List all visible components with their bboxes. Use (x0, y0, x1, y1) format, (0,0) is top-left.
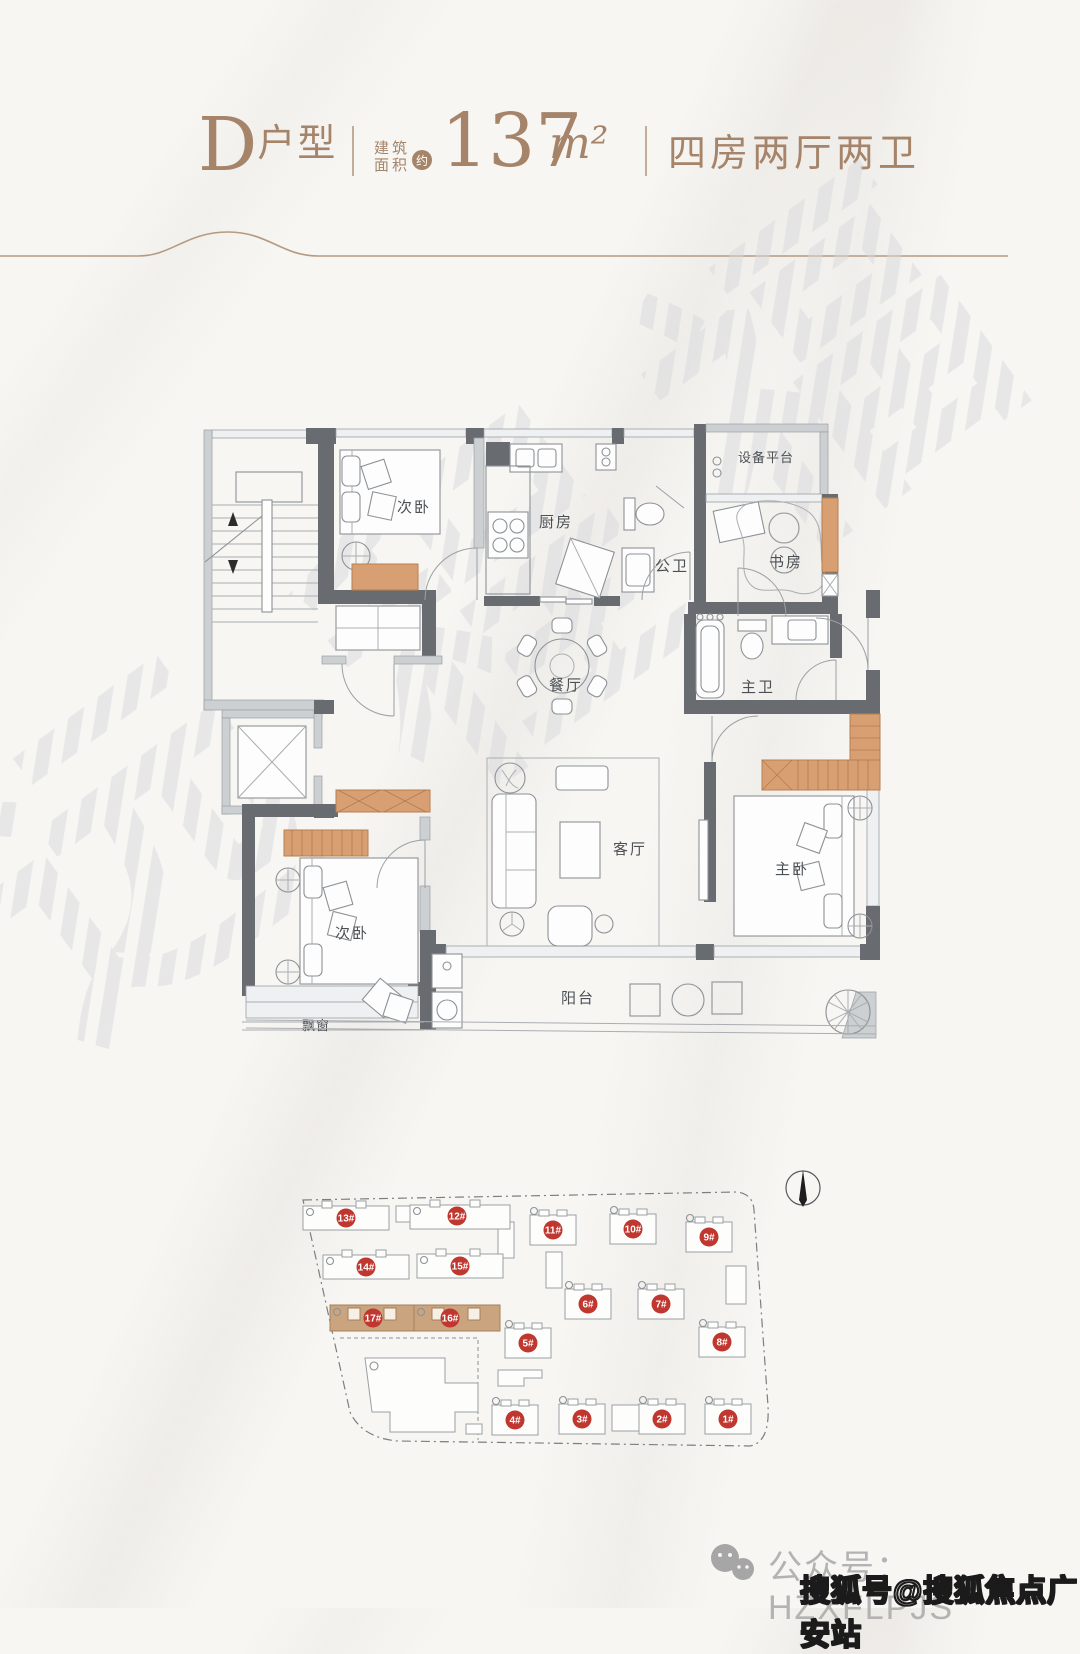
room-master-bedroom: 主卧 (712, 714, 880, 938)
building-badge: 3# (576, 1415, 588, 1426)
building-badge: 1# (722, 1415, 734, 1426)
room-label: 餐厅 (549, 677, 583, 694)
site-building-8: 8# (699, 1320, 745, 1358)
building-badge: 8# (716, 1338, 728, 1349)
room-label: 次卧 (397, 499, 431, 516)
room-label: 客厅 (613, 841, 647, 858)
site-building-5: 5# (505, 1321, 551, 1359)
site-building-12: 12# (410, 1200, 510, 1229)
wardrobe-master-v (850, 714, 880, 760)
compass-icon (786, 1170, 820, 1207)
building-badge: 16# (442, 1314, 459, 1325)
building-badge: 10# (625, 1225, 642, 1236)
room-label: 厨房 (539, 514, 573, 531)
site-building-2: 2# (639, 1397, 685, 1435)
site-building-14: 14# (323, 1250, 409, 1279)
wardrobe-master-h (762, 760, 880, 790)
stair-arrow-down (228, 560, 238, 574)
room-master-bath: 主卫 (696, 614, 836, 700)
tv-panel (699, 820, 708, 900)
building-badge: 13# (338, 1214, 355, 1225)
building-badge: 5# (522, 1339, 534, 1350)
site-structure-c (466, 1424, 482, 1434)
building-badge: 15# (452, 1262, 469, 1273)
room-label: 公卫 (655, 558, 689, 575)
building-badge: 12# (449, 1212, 466, 1223)
stair-arrow-up (228, 512, 238, 526)
room-label: 次卧 (335, 925, 369, 942)
wardrobe-bedroom-top (352, 564, 418, 590)
site-building-1: 1# (705, 1397, 751, 1435)
building-badge: 2# (656, 1415, 668, 1426)
room-label: 主卫 (741, 679, 775, 696)
room-label: 书房 (769, 554, 803, 571)
wechat-icon (706, 1542, 758, 1586)
site-building-7: 7# (638, 1282, 684, 1320)
door-master-bedroom (712, 716, 758, 762)
hall-closet (336, 606, 420, 650)
site-building-17: 17# (330, 1305, 416, 1331)
site-plan: 13# 12# 14# 15# 17# 16# 11# (303, 1170, 820, 1446)
site-building-16: 16# (414, 1305, 500, 1331)
site-structure-e (546, 1252, 562, 1288)
site-building-4: 4# (492, 1398, 538, 1436)
site-building-15: 15# (417, 1249, 503, 1278)
room-label: 设备平台 (738, 450, 794, 465)
site-building-irregular (365, 1358, 478, 1432)
site-building-6: 6# (565, 1282, 611, 1320)
site-building-3: 3# (559, 1397, 605, 1435)
building-badge: 6# (582, 1300, 594, 1311)
site-structure-b (498, 1370, 542, 1386)
room-label: 主卧 (775, 861, 809, 878)
bay-window: 飘窗 (242, 978, 424, 1033)
site-building-13: 13# (303, 1201, 389, 1230)
site-building-10: 10# (610, 1207, 656, 1245)
wardrobe-bedroom-bottom (284, 830, 368, 856)
site-building-11: 11# (530, 1208, 576, 1246)
wardrobe-study (822, 498, 838, 572)
room-label: 阳台 (561, 990, 595, 1007)
elevator (238, 726, 306, 798)
flyer-canvas: 远 程 福 (0, 0, 1080, 1608)
building-badge: 7# (655, 1300, 667, 1311)
building-badge: 11# (545, 1226, 562, 1237)
site-structure-a (726, 1266, 746, 1304)
building-badge: 4# (509, 1416, 521, 1427)
building-badge: 17# (365, 1314, 382, 1325)
door-master-bath (796, 660, 836, 700)
sohu-watermark: 搜狐号@搜狐焦点广安站 (800, 1566, 1080, 1654)
building-badge: 9# (703, 1233, 715, 1244)
site-building-9: 9# (686, 1215, 732, 1253)
building-badge: 14# (358, 1263, 375, 1274)
foyer-cabinet (336, 790, 430, 812)
